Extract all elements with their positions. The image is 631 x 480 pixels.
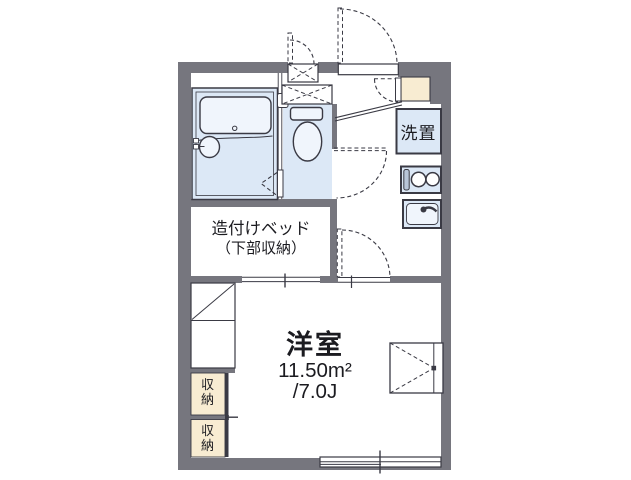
entrance-door-open [338,8,343,63]
stove-grill [404,170,409,191]
meter-box [288,33,318,82]
bed-room-front [242,274,320,288]
stove-burner [411,172,425,186]
bed-label-line2: （下部収納） [181,239,341,258]
wall-closet-divider [188,368,235,373]
sliding-window [320,451,441,474]
floorplan: 洗置 造付けベッド （下部収納） 洋室 11.50m² /7.0J 収納 収納 [0,0,631,480]
meter-box-door-swing [290,40,314,64]
wall-bed-bottom-right [320,276,338,283]
wall-top-left [178,62,288,73]
closet-box [191,283,235,368]
room-area-m2: 11.50m² [235,360,395,382]
closet [191,283,235,368]
entrance-door-swing [340,9,397,64]
toilet-door-swing [337,151,387,198]
main-room-label: 洋室 11.50m² /7.0J [235,330,395,402]
storage-upper-label: 収納 [199,378,216,407]
shoe-door-swing [375,79,399,102]
room-name: 洋室 [235,330,395,360]
bed-label-line1: 造付けベッド [181,220,341,239]
shoe-cabinet-door [396,78,402,101]
main-room-doorway [337,229,390,288]
bathtub [200,97,271,134]
entrance [335,8,402,121]
genkan-step-line [335,102,402,121]
laundry-label: 洗置 [396,109,441,154]
room-area-tatami: /7.0J [235,382,395,402]
built-in-bed-label: 造付けベッド （下部収納） [181,220,341,258]
wall-top-mid [318,62,338,73]
bath-faucet [194,145,199,150]
storage-lower-label: 収納 [199,424,216,453]
toilet-bowl [293,122,321,161]
pipe-space [282,85,332,104]
storage-front-wall [225,373,229,457]
shoe-cabinet-box [401,77,430,101]
entrance-door [338,64,398,75]
casement-window-symbol [390,343,443,393]
shoe-cabinet [374,77,430,102]
toilet-tank [291,108,323,121]
wall-left [178,62,191,470]
toilet-door [334,148,387,198]
bathroom [192,88,278,200]
sink-basin [407,204,439,225]
wall-hall-room [390,276,441,283]
casement-handle [432,366,437,371]
room-door-swing [342,230,390,278]
stove-burner [426,173,439,186]
stove [401,167,441,194]
wall-toilet-hall [332,104,337,149]
kitchen-sink [403,200,441,228]
meter-box-door-open [288,33,293,63]
wall-bed-bottom-left [191,276,242,283]
bath-faucet [194,139,199,144]
bath-door [278,170,284,197]
wall-right [441,62,451,470]
